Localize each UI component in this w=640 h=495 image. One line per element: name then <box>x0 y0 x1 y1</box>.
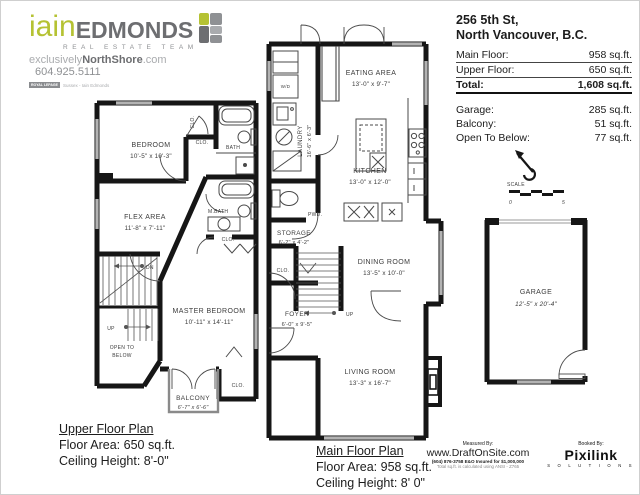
row-label: Main Floor: <box>456 48 557 63</box>
closet-label: CLO. <box>277 268 290 274</box>
room-dims-master: 10'-11" x 14'-11" <box>185 319 233 326</box>
room-dims-flex: 11'-8" x 7'-11" <box>125 225 166 232</box>
room-label-storage: STORAGE <box>277 230 311 237</box>
closet-label: CLO. <box>196 140 209 146</box>
room-dims-balcony: 6'-7" x 6'-6" <box>178 405 210 411</box>
room-dims-dining: 13'-5" x 10'-0" <box>363 270 405 277</box>
area-table: Main Floor: 958 sq.ft. Upper Floor: 650 … <box>456 48 632 145</box>
row-label: Garage: <box>456 103 557 117</box>
stairs-dn-label: DN <box>146 265 154 271</box>
pixilink-solutions-label: S O L U T I O N S <box>545 463 637 468</box>
open-to-below-label: BELOW <box>112 353 132 359</box>
room-dims-laundry: 16'-6" x 6'-3" <box>307 125 313 158</box>
kitchen-fixtures <box>344 98 426 221</box>
caption-title: Upper Floor Plan <box>59 421 175 437</box>
closet-label: CLO. <box>232 383 245 389</box>
caption-ceiling: Ceiling Height: 8' 0" <box>316 475 432 491</box>
main-plan-caption: Main Floor Plan Floor Area: 958 sq.ft. C… <box>316 443 432 491</box>
address-line-2: North Vancouver, B.C. <box>456 28 632 43</box>
room-label-garage: GARAGE <box>520 289 552 296</box>
tagline-light: exclusively <box>29 54 82 66</box>
powder-label: PWD. <box>308 212 322 218</box>
scale-end: 5 <box>562 200 565 206</box>
upper-floor-plan: BEDROOM 10'-5" x 10'-3" FLEX AREA 11'-8"… <box>56 89 261 421</box>
north-arrow-icon <box>515 150 535 180</box>
scale-start: 0 <box>509 200 512 206</box>
brokerage-brand: ROYAL LEPAGE <box>29 82 60 88</box>
garage-man-door <box>559 350 585 379</box>
caption-ceiling: Ceiling Height: 8'-0" <box>59 453 175 469</box>
room-label-master: MASTER BEDROOM <box>173 308 246 315</box>
draftonsite-logo: www.DraftOnSite.com <box>419 447 537 459</box>
laundry-fixtures <box>273 51 301 171</box>
row-value: 285 sq.ft. <box>557 103 632 117</box>
room-dims-foyer: 6'-0" x 9'-5" <box>282 322 313 328</box>
stairs-up-label: UP <box>346 312 354 318</box>
room-dims-storage: 6'-2" x 4'-2" <box>279 240 310 246</box>
bath-label: BATH <box>226 145 240 151</box>
tagline-suffix: .com <box>143 54 167 66</box>
room-dims-garage: 12'-5" x 20'-4" <box>515 301 557 308</box>
row-value: 650 sq.ft. <box>557 63 632 78</box>
total-label: Total: <box>456 78 557 94</box>
room-label-flex: FLEX AREA <box>124 214 166 221</box>
room-label-kitchen: KITCHEN <box>353 168 387 175</box>
row-label: Upper Floor: <box>456 63 557 78</box>
garage-plan: SCALE 0 5 GARAGE 12'-5" x 20'-4" <box>479 136 639 406</box>
booked-by-block: Booked By: Pixilink S O L U T I O N S <box>545 441 637 469</box>
caption-area: Floor Area: 650 sq.ft. <box>59 437 175 453</box>
washer-dryer-label: W/D <box>281 84 290 89</box>
total-value: 1,608 sq.ft. <box>557 78 632 94</box>
row-value: 51 sq.ft. <box>557 117 632 131</box>
logo: iain EDMONDS REAL ESTATE TEAM exclusivel… <box>29 13 229 88</box>
table-row: Balcony: 51 sq.ft. <box>456 117 632 131</box>
logo-first-name: iain <box>29 13 76 41</box>
garage-walls <box>485 218 587 382</box>
address-line-1: 256 5th St, <box>456 13 632 28</box>
room-label-balcony: BALCONY <box>176 395 210 402</box>
room-dims-eating: 13'-0" x 9'-7" <box>352 81 390 88</box>
main-floor-plan: LAUNDRY 16'-6" x 6'-3" W/D EATING AREA 1… <box>256 13 461 441</box>
row-label: Balcony: <box>456 117 557 131</box>
room-dims-kitchen: 13'-0" x 12'-0" <box>349 179 391 186</box>
room-label-eating: EATING AREA <box>346 70 397 77</box>
table-row: Main Floor: 958 sq.ft. <box>456 48 632 63</box>
table-row-total: Total: 1,608 sq.ft. <box>456 78 632 94</box>
caption-title: Main Floor Plan <box>316 443 432 459</box>
room-label-foyer: FOYER <box>285 311 309 318</box>
measured-by-block: Measured By: www.DraftOnSite.com (604) 8… <box>419 441 537 469</box>
hall-closet <box>322 46 339 101</box>
entry-door-swings <box>301 25 384 44</box>
floor-plan-sheet: iain EDMONDS REAL ESTATE TEAM exclusivel… <box>0 0 640 495</box>
room-dims-bedroom: 10'-5" x 10'-3" <box>130 153 172 160</box>
logo-tagline: exclusivelyNorthShore.com 604.925.5111 <box>29 54 229 78</box>
ansi-note: Total sq.ft. is calculated using ANSI - … <box>419 464 537 469</box>
tagline-bold: NorthShore <box>82 54 143 66</box>
row-value: 958 sq.ft. <box>557 48 632 63</box>
room-label-laundry: LAUNDRY <box>298 125 304 156</box>
stairs-up-label: UP <box>107 326 115 332</box>
logo-subtitle: REAL ESTATE TEAM <box>63 44 229 51</box>
table-row: Upper Floor: 650 sq.ft. <box>456 63 632 78</box>
brokerage-name: Sussex - Iain Edmonds <box>63 83 109 88</box>
open-to-below-label: OPEN TO <box>110 345 134 351</box>
powder-fixtures <box>272 190 298 207</box>
mbath-label: M.BATH <box>208 209 228 215</box>
room-label-bedroom: BEDROOM <box>132 142 171 149</box>
room-dims-living: 13'-3" x 16'-7" <box>349 380 391 387</box>
room-label-dining: DINING ROOM <box>358 259 411 266</box>
room-label-living: LIVING ROOM <box>344 369 395 376</box>
upper-plan-caption: Upper Floor Plan Floor Area: 650 sq.ft. … <box>59 421 175 469</box>
logo-phone: 604.925.5111 <box>35 66 101 78</box>
pixilink-logo: Pixilink <box>545 447 637 463</box>
garage-door-opening <box>499 220 571 223</box>
footer: Measured By: www.DraftOnSite.com (604) 8… <box>419 441 637 469</box>
closet-label: CLO. <box>190 116 196 129</box>
table-row: Garage: 285 sq.ft. <box>456 103 632 117</box>
closet-label: CLO. <box>222 237 235 243</box>
header: 256 5th St, North Vancouver, B.C. Main F… <box>456 13 632 145</box>
logo-last-name: EDMONDS <box>76 13 194 44</box>
caption-area: Floor Area: 958 sq.ft. <box>316 459 432 475</box>
scale-label: SCALE <box>507 182 525 188</box>
scale-bar: SCALE 0 5 <box>507 182 565 206</box>
fireplace <box>428 369 438 395</box>
brokerage-line: ROYAL LEPAGE Sussex - Iain Edmonds <box>29 82 229 88</box>
logo-grid-icon <box>199 13 223 43</box>
